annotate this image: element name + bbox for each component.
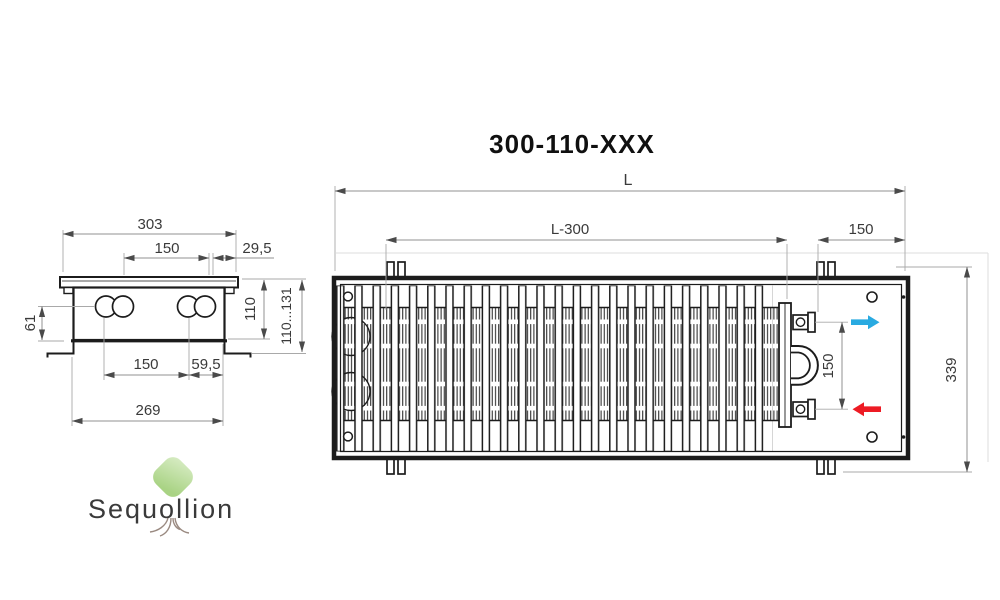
fixing-hole-bottom-left xyxy=(344,432,353,441)
dim-lip-overhang: 29,5 xyxy=(242,240,271,257)
page-title: 300-110-XXX xyxy=(489,129,655,159)
dim-overall-width: 303 xyxy=(137,216,162,233)
dim-install-height-range: 110...131 xyxy=(278,287,294,345)
exchanger-end-plate xyxy=(779,303,791,427)
dim-overall-width-plan: 339 xyxy=(943,357,960,382)
foot-bracket-right xyxy=(225,340,251,358)
dim-pipe-spacing-bottom: 150 xyxy=(133,356,158,373)
lip-end-cap-left xyxy=(64,288,73,294)
screw-dot-top xyxy=(902,295,906,299)
dim-pipe-edge-offset: 59,5 xyxy=(191,356,220,373)
pipe-connection-top xyxy=(793,313,815,333)
dim-pipe-spacing-top: 150 xyxy=(154,240,179,257)
side-section-view: 303 150 29,5 61 110 110...131 150 59,5 2… xyxy=(22,216,306,426)
dim-grille-length: L-300 xyxy=(551,221,589,238)
fixing-hole-top-right xyxy=(867,292,877,302)
plan-view: L L-300 150 339 150 xyxy=(332,172,988,474)
dim-pipe-axis-height: 61 xyxy=(22,315,39,332)
screw-dot-bottom xyxy=(902,435,906,439)
logo-wordmark: Sequollion xyxy=(88,494,234,524)
dim-connection-end-offset: 150 xyxy=(848,221,873,238)
roll-grille xyxy=(336,286,773,452)
pipe-connection-bottom xyxy=(793,400,815,420)
watermark-logo: Sequollion xyxy=(88,453,234,536)
fixing-hole-bottom-right xyxy=(867,432,877,442)
dim-body-width: 269 xyxy=(135,402,160,419)
side-view-body xyxy=(48,277,251,358)
dim-connection-spacing: 150 xyxy=(820,353,837,378)
foot-bracket-left xyxy=(48,340,74,358)
fixing-hole-top-left xyxy=(344,292,353,301)
technical-drawing: 300-110-XXX xyxy=(0,0,1000,600)
lip-end-cap-right xyxy=(225,288,234,294)
dim-body-height: 110 xyxy=(242,297,259,321)
drawing-page: 300-110-XXX xyxy=(0,0,1000,600)
dim-overall-length: L xyxy=(624,172,633,189)
